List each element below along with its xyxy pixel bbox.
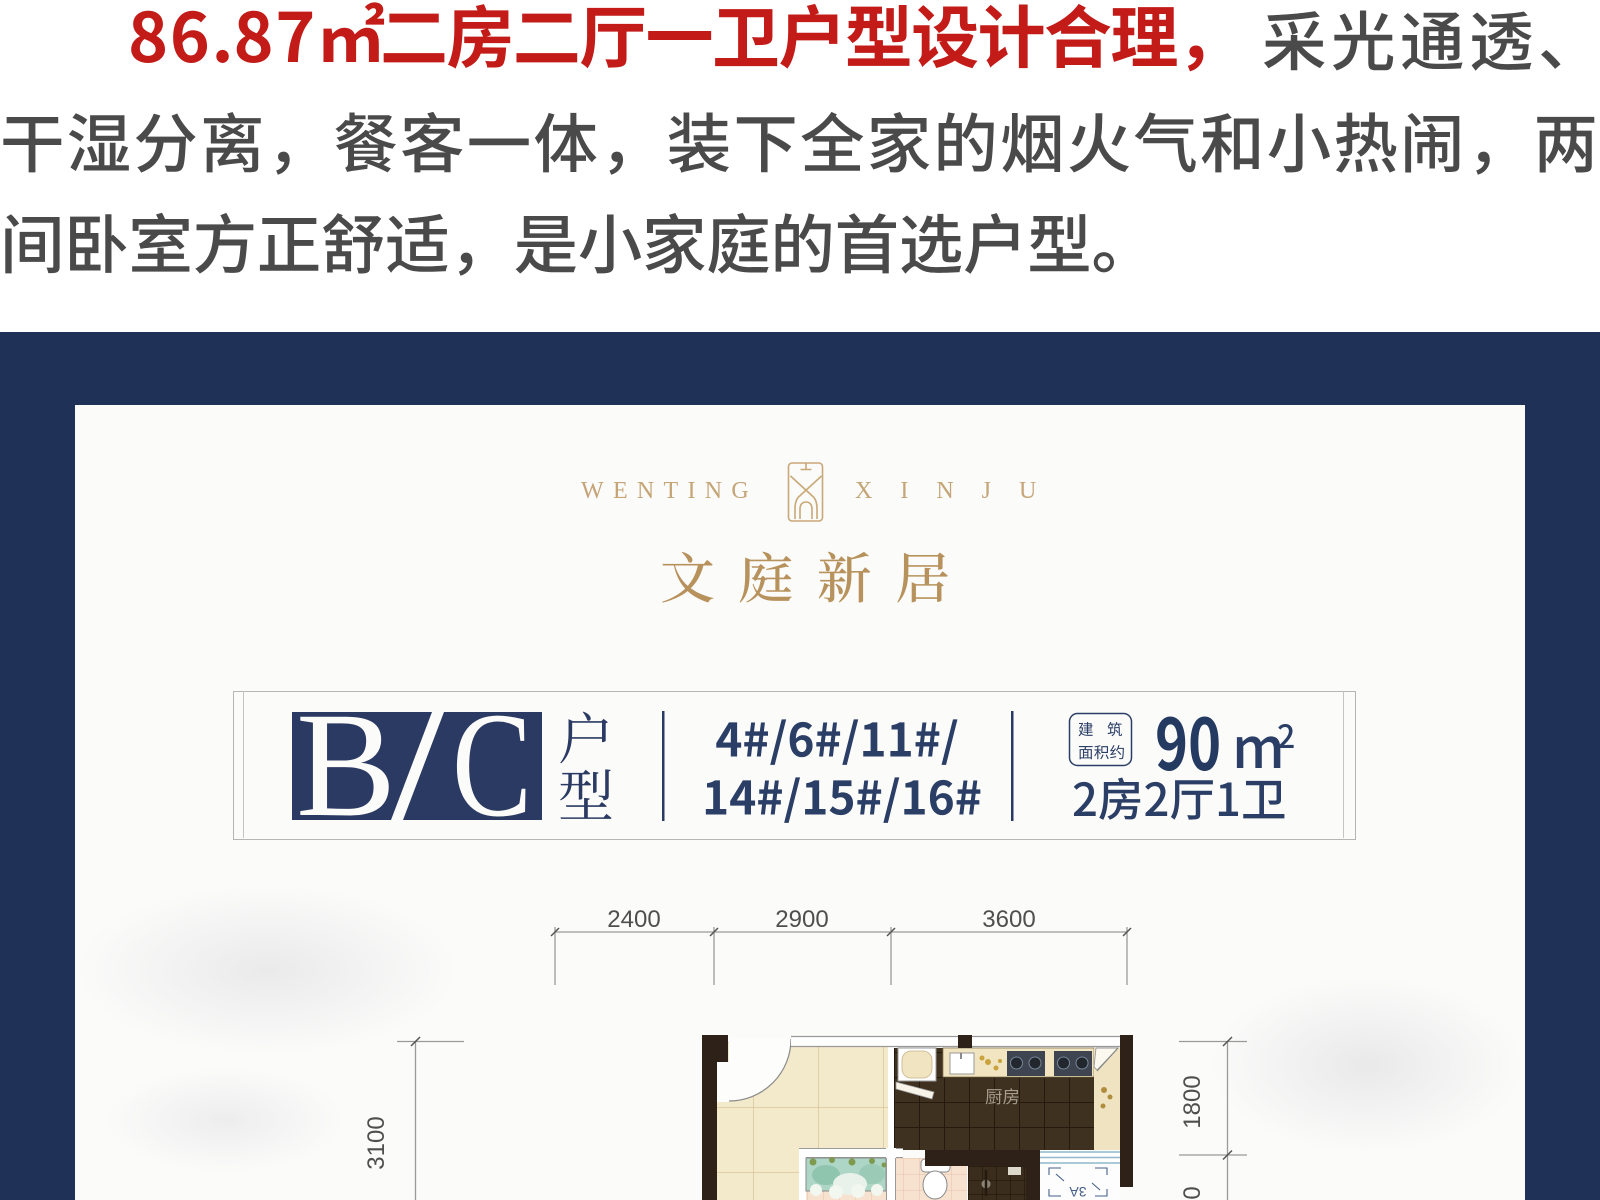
svg-text:2400: 2400: [607, 906, 660, 933]
svg-text:3100: 3100: [363, 1116, 390, 1169]
svg-text:3600: 3600: [982, 906, 1035, 933]
svg-text:1800: 1800: [1179, 1075, 1206, 1128]
svg-text:C: C: [452, 685, 532, 845]
svg-text:2900: 2900: [775, 906, 828, 933]
svg-text:3000: 3000: [1179, 1186, 1206, 1200]
svg-text:B: B: [296, 685, 396, 845]
svg-text:3A: 3A: [1069, 1184, 1087, 1200]
svg-text:WENTING: WENTING: [581, 478, 758, 504]
svg-text:XINJU: XINJU: [855, 478, 1064, 504]
